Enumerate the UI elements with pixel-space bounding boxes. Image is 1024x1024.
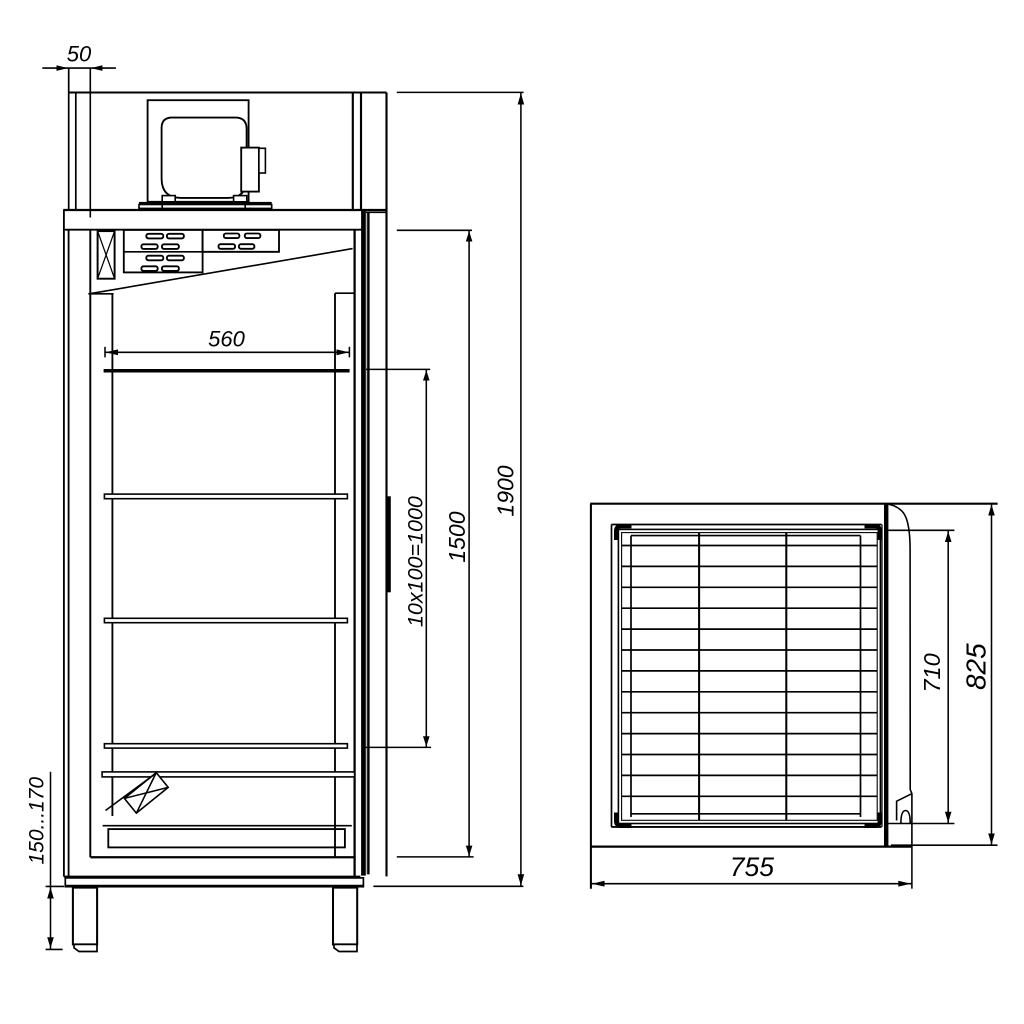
svg-text:50: 50 — [67, 42, 92, 67]
svg-text:1500: 1500 — [444, 511, 470, 562]
svg-text:1900: 1900 — [493, 465, 519, 516]
svg-text:560: 560 — [208, 326, 245, 351]
svg-text:10x100=1000: 10x100=1000 — [404, 496, 428, 627]
svg-text:755: 755 — [730, 852, 774, 882]
svg-text:710: 710 — [919, 653, 945, 692]
svg-text:825: 825 — [961, 643, 992, 690]
svg-text:150...170: 150...170 — [26, 777, 49, 865]
